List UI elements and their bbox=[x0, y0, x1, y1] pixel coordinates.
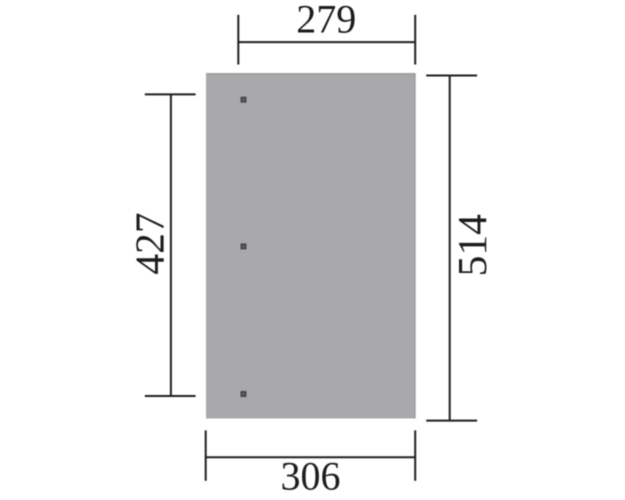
svg-text:514: 514 bbox=[449, 214, 495, 277]
svg-text:427: 427 bbox=[127, 212, 173, 274]
svg-text:279: 279 bbox=[296, 0, 356, 42]
svg-text:306: 306 bbox=[281, 454, 341, 499]
